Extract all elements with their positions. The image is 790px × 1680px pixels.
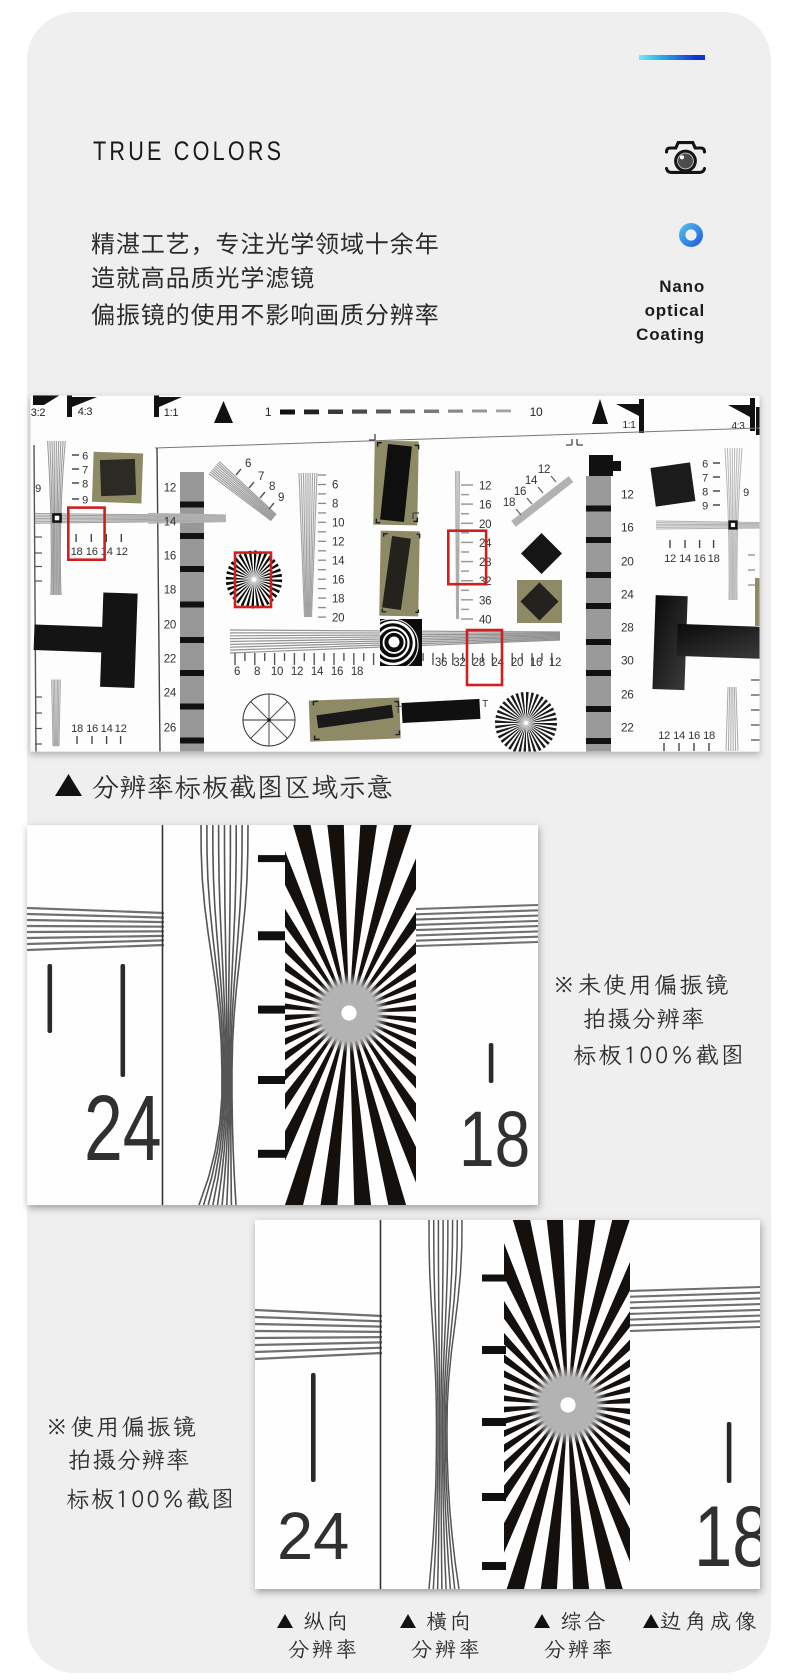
svg-text:18: 18 [459,1096,530,1184]
svg-text:6: 6 [234,666,240,678]
svg-text:4:3: 4:3 [731,421,745,432]
svg-text:16: 16 [694,553,706,565]
svg-text:9: 9 [82,495,88,507]
svg-text:8: 8 [269,481,275,493]
svg-text:20: 20 [164,620,176,632]
svg-text:28: 28 [621,621,634,635]
svg-text:20: 20 [479,519,491,531]
svg-text:1:1: 1:1 [622,420,636,431]
svg-text:9: 9 [278,492,284,504]
svg-text:10: 10 [530,405,543,419]
svg-text:12: 12 [479,481,491,493]
svg-text:40: 40 [479,615,491,627]
svg-text:1: 1 [265,405,272,419]
svg-text:12: 12 [115,723,127,735]
svg-text:26: 26 [621,688,634,702]
svg-text:14: 14 [332,556,345,568]
svg-text:18: 18 [164,585,176,597]
svg-text:12: 12 [291,666,303,678]
svg-text:9: 9 [702,501,708,513]
svg-text:18: 18 [694,1489,760,1585]
svg-text:4:3: 4:3 [78,406,93,418]
svg-text:24: 24 [84,1077,162,1180]
svg-text:32: 32 [453,657,465,669]
svg-text:18: 18 [71,723,83,735]
svg-text:14: 14 [164,517,177,529]
svg-text:9: 9 [35,483,41,495]
svg-text:6: 6 [332,480,338,492]
svg-text:12: 12 [549,657,561,669]
svg-text:14: 14 [673,730,685,742]
svg-text:8: 8 [702,487,708,499]
svg-text:10: 10 [271,666,283,678]
svg-text:12: 12 [621,488,634,502]
svg-text:16: 16 [514,486,526,498]
svg-text:6: 6 [245,458,251,470]
svg-text:24: 24 [277,1498,349,1573]
svg-text:12: 12 [332,537,344,549]
svg-text:22: 22 [164,654,176,666]
svg-text:12: 12 [538,464,550,476]
svg-text:7: 7 [702,473,708,485]
svg-text:16: 16 [332,575,344,587]
svg-text:20: 20 [511,657,523,669]
svg-text:16: 16 [479,500,491,512]
svg-text:14: 14 [311,666,324,678]
svg-text:18: 18 [71,546,83,558]
svg-text:18: 18 [708,553,720,565]
svg-text:16: 16 [164,551,176,563]
svg-text:12: 12 [164,483,176,495]
svg-text:16: 16 [530,657,542,669]
svg-text:14: 14 [101,723,113,735]
svg-text:10: 10 [332,518,344,530]
svg-text:T: T [482,699,488,710]
svg-text:36: 36 [479,595,491,607]
svg-text:18: 18 [703,730,715,742]
svg-text:14: 14 [679,553,691,565]
svg-text:20: 20 [332,613,344,625]
svg-text:20: 20 [621,555,634,569]
svg-text:1:1: 1:1 [164,407,179,419]
svg-text:28: 28 [473,657,485,669]
svg-text:9: 9 [743,487,749,499]
svg-text:16: 16 [86,723,98,735]
svg-text:16: 16 [86,546,98,558]
svg-text:7: 7 [82,465,88,477]
svg-text:16: 16 [621,521,634,535]
svg-text:12: 12 [658,730,670,742]
svg-text:18: 18 [351,666,363,678]
svg-text:36: 36 [435,657,447,669]
svg-text:7: 7 [258,471,264,483]
svg-text:T: T [395,705,401,716]
svg-text:6: 6 [702,459,708,471]
svg-text:24: 24 [621,588,634,602]
svg-text:12: 12 [664,553,676,565]
svg-text:14: 14 [101,546,113,558]
svg-text:18: 18 [503,497,515,509]
svg-text:18: 18 [332,594,344,606]
svg-text:8: 8 [254,666,260,678]
svg-text:14: 14 [525,475,538,487]
svg-text:3:2: 3:2 [31,407,46,419]
svg-text:26: 26 [164,723,176,735]
svg-text:8: 8 [82,479,88,491]
svg-text:6: 6 [82,451,88,463]
svg-text:16: 16 [688,730,700,742]
svg-text:22: 22 [621,721,634,735]
svg-text:16: 16 [331,666,343,678]
svg-text:8: 8 [332,499,338,511]
svg-text:24: 24 [164,688,177,700]
svg-text:12: 12 [116,546,128,558]
svg-text:30: 30 [621,654,634,668]
